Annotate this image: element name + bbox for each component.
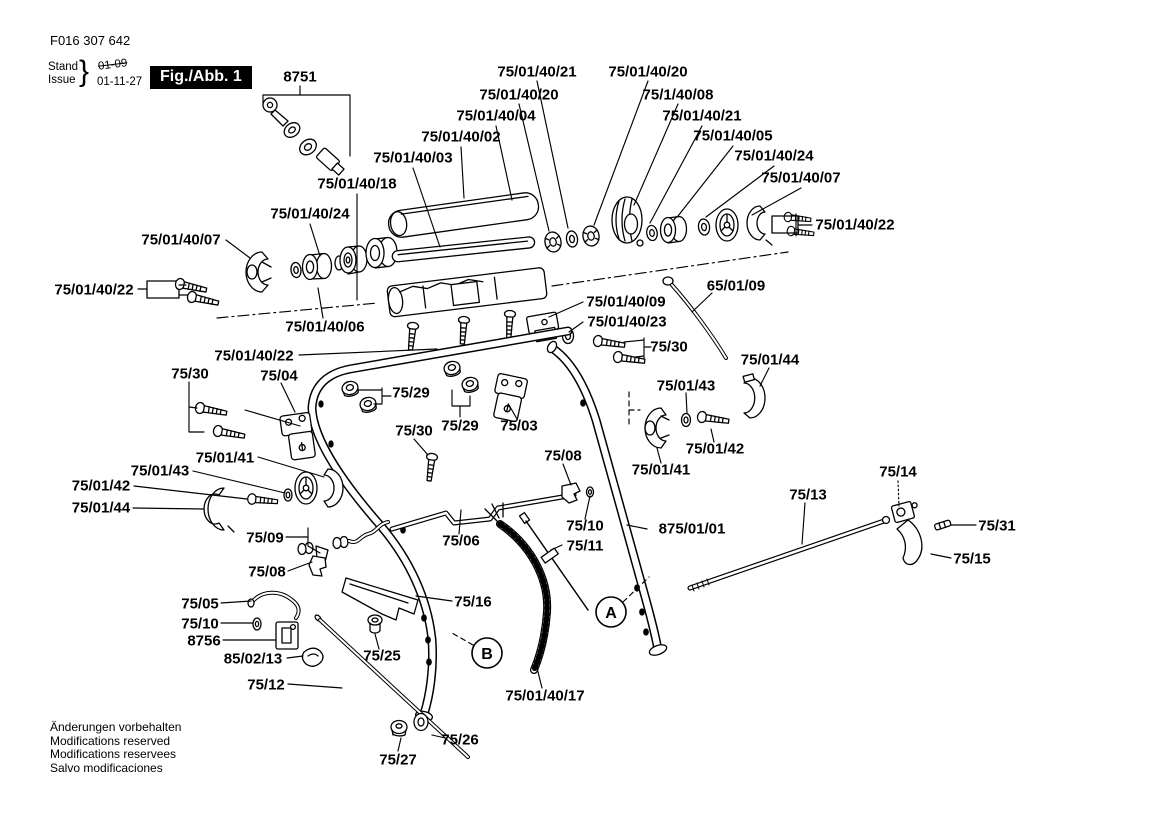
part-label: 75/08 (544, 449, 582, 464)
part-label: 75/11 (567, 539, 604, 554)
part-label: 75/15 (953, 552, 991, 567)
part-label: 75/01/44 (72, 501, 130, 516)
part-label: 75/01/40/24 (270, 207, 349, 222)
part-label: 75/1/40/08 (643, 88, 714, 103)
part-label: 75/09 (246, 531, 284, 546)
document-part-number: F016 307 642 (50, 33, 130, 48)
part-label: 75/01/40/09 (586, 295, 665, 310)
footer-line-en: Modifications reserved (50, 735, 181, 749)
part-label: 75/25 (363, 649, 401, 664)
part-label: 75/30 (171, 367, 209, 382)
part-label: 75/29 (441, 419, 479, 434)
part-label: 75/01/40/23 (587, 315, 666, 330)
part-label: 75/01/41 (632, 463, 690, 478)
part-label: 75/03 (500, 419, 538, 434)
part-label: 75/01/40/24 (734, 149, 813, 164)
part-label: 75/30 (395, 424, 433, 439)
part-label: 75/01/43 (657, 379, 715, 394)
part-label: 75/26 (441, 733, 479, 748)
part-label: 85/02/13 (224, 652, 282, 667)
part-label: 75/31 (978, 519, 1016, 534)
part-label: 75/06 (442, 534, 480, 549)
handle-clamp-parts-row (543, 197, 814, 286)
part-label: 75/01/40/22 (214, 349, 293, 364)
part-label: 75/10 (566, 519, 604, 534)
key-kit-assembly (263, 86, 350, 177)
footer-line-es: Salvo modificaciones (50, 762, 181, 776)
cable-bracket-75-04 (280, 412, 316, 461)
view-marker-b-label: B (481, 646, 493, 663)
view-marker-a-label: A (605, 605, 617, 622)
cable-bracket-75-03 (489, 373, 527, 422)
bottom-nut-washer (391, 714, 428, 736)
part-label: 8751 (283, 70, 316, 85)
part-label: 75/10 (181, 617, 219, 632)
part-label: 75/13 (789, 488, 827, 503)
part-label: 65/01/09 (707, 279, 765, 294)
part-label: 75/01/42 (72, 479, 130, 494)
footer-line-de: Änderungen vorbehalten (50, 721, 181, 735)
part-label: 75/27 (379, 753, 417, 768)
part-label: 75/01/40/05 (693, 129, 772, 144)
issue-label: Issue (48, 74, 78, 87)
part-label: 75/16 (454, 595, 492, 610)
part-label: 75/01/40/04 (456, 109, 535, 124)
part-label: 75/29 (392, 386, 430, 401)
part-label: 75/01/40/06 (285, 320, 364, 335)
part-label: 75/01/41 (196, 451, 254, 466)
left-clutch-assembly (147, 238, 397, 319)
part-label: 75/01/40/02 (421, 130, 500, 145)
part-label: 75/04 (260, 369, 298, 384)
rod-and-lever-group (690, 500, 951, 591)
part-label: 75/01/40/21 (662, 109, 741, 124)
part-label: 75/01/40/21 (497, 65, 576, 80)
part-label: 75/01/40/22 (815, 218, 894, 233)
part-label: 75/01/42 (686, 442, 744, 457)
part-label: 75/08 (248, 565, 286, 580)
footer-notice: Änderungen vorbehalten Modifications res… (50, 721, 181, 775)
part-label: 75/05 (181, 597, 219, 612)
part-label: 75/01/40/17 (505, 689, 584, 704)
part-label: 875/01/01 (659, 522, 726, 537)
figure-badge: Fig./Abb. 1 (150, 66, 252, 89)
part-label: 75/01/40/18 (317, 177, 396, 192)
footer-line-fr: Modifications reservees (50, 748, 181, 762)
part-label: 75/01/44 (741, 353, 799, 368)
part-label: 75/01/40/22 (54, 283, 133, 298)
part-label: 8756 (187, 634, 220, 649)
part-label: 75/14 (879, 465, 917, 480)
cable-guide-group (298, 522, 388, 576)
part-label: 75/01/40/07 (141, 233, 220, 248)
part-label: 75/01/40/20 (479, 88, 558, 103)
view-marker-a: A (596, 597, 626, 627)
part-label: 75/01/40/20 (608, 65, 687, 80)
view-marker-b: B (472, 638, 502, 668)
issue-date-current: 01-11-27 (97, 76, 142, 88)
part-label: 75/01/43 (131, 464, 189, 479)
stand-label: Stand (48, 61, 78, 74)
part-label: 75/30 (650, 340, 688, 355)
stand-issue-brace: } (79, 55, 89, 89)
parts-diagram-page: A B F016 307 642 Stand Issue } 01-09 01-… (0, 0, 1168, 825)
stand-issue-block: Stand Issue (48, 61, 78, 87)
part-label: 75/01/40/03 (373, 151, 452, 166)
part-label: 75/01/40/07 (761, 171, 840, 186)
part-label: 75/12 (247, 678, 285, 693)
